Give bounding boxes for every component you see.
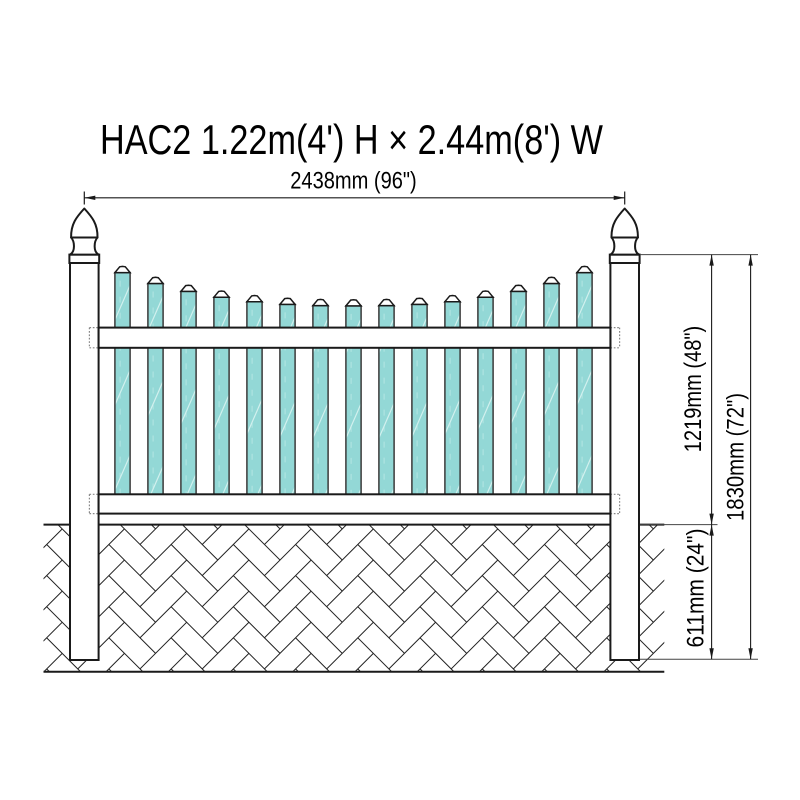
svg-text:2438mm (96"): 2438mm (96") bbox=[290, 168, 417, 195]
svg-text:611mm (24"): 611mm (24") bbox=[683, 529, 710, 648]
svg-text:1219mm (48"): 1219mm (48") bbox=[680, 326, 707, 453]
svg-text:1830mm (72"): 1830mm (72") bbox=[723, 393, 750, 521]
svg-text:HAC2 1.22m(4') H × 2.44m(8') W: HAC2 1.22m(4') H × 2.44m(8') W bbox=[100, 116, 603, 163]
